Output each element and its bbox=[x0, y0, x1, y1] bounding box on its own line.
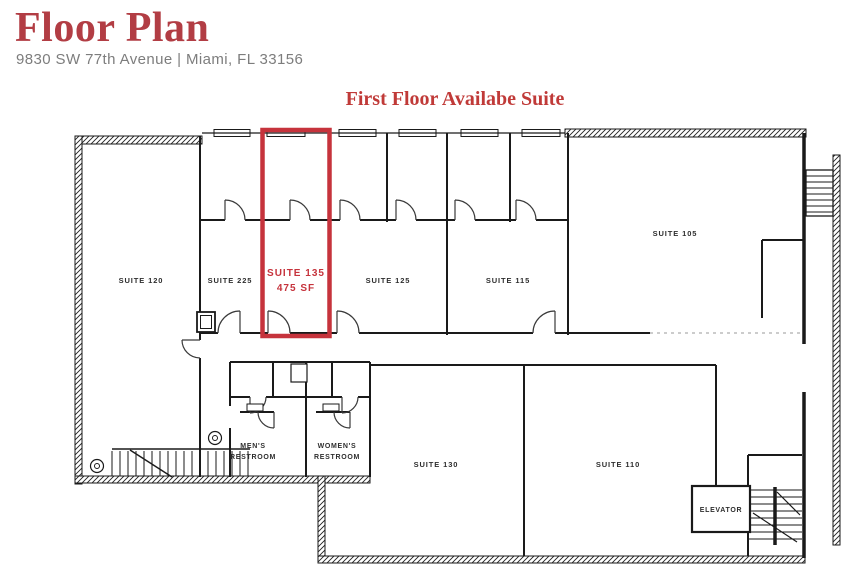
door-swings bbox=[182, 200, 555, 428]
suite-labels: SUITE 120 SUITE 225 SUITE 135 475 SF SUI… bbox=[119, 229, 698, 469]
property-address: 9830 SW 77th Avenue | Miami, FL 33156 bbox=[16, 51, 303, 68]
plan-heading: First Floor Availabe Suite bbox=[346, 88, 565, 111]
suite-105-label: SUITE 105 bbox=[653, 229, 698, 238]
highlighted-suite-box bbox=[263, 130, 330, 336]
elevator-room: ELEVATOR bbox=[692, 486, 750, 532]
suite-225-label: SUITE 225 bbox=[208, 276, 253, 285]
page-title: Floor Plan bbox=[15, 4, 209, 52]
suite-135-area: 475 SF bbox=[277, 283, 315, 294]
womens-restroom-label-line1: WOMEN'S bbox=[318, 443, 357, 450]
mens-restroom-label-line1: MEN'S bbox=[240, 443, 265, 450]
suite-115-label: SUITE 115 bbox=[486, 276, 530, 285]
elevator-label: ELEVATOR bbox=[700, 507, 743, 514]
suite-130-label: SUITE 130 bbox=[414, 460, 459, 469]
mens-restroom-label-line2: RESTROOM bbox=[230, 454, 276, 461]
suite-110-label: SUITE 110 bbox=[596, 460, 640, 469]
womens-restroom-label-line2: RESTROOM bbox=[314, 454, 360, 461]
suite-125-label: SUITE 125 bbox=[366, 276, 411, 285]
stairs-top-right bbox=[806, 170, 833, 216]
floor-plan-flyer: Floor Plan 9830 SW 77th Avenue | Miami, … bbox=[0, 0, 865, 588]
suite-120-label: SUITE 120 bbox=[119, 276, 164, 285]
stairwell-bottom-right bbox=[748, 455, 802, 556]
suite-135-label: SUITE 135 bbox=[267, 268, 325, 279]
